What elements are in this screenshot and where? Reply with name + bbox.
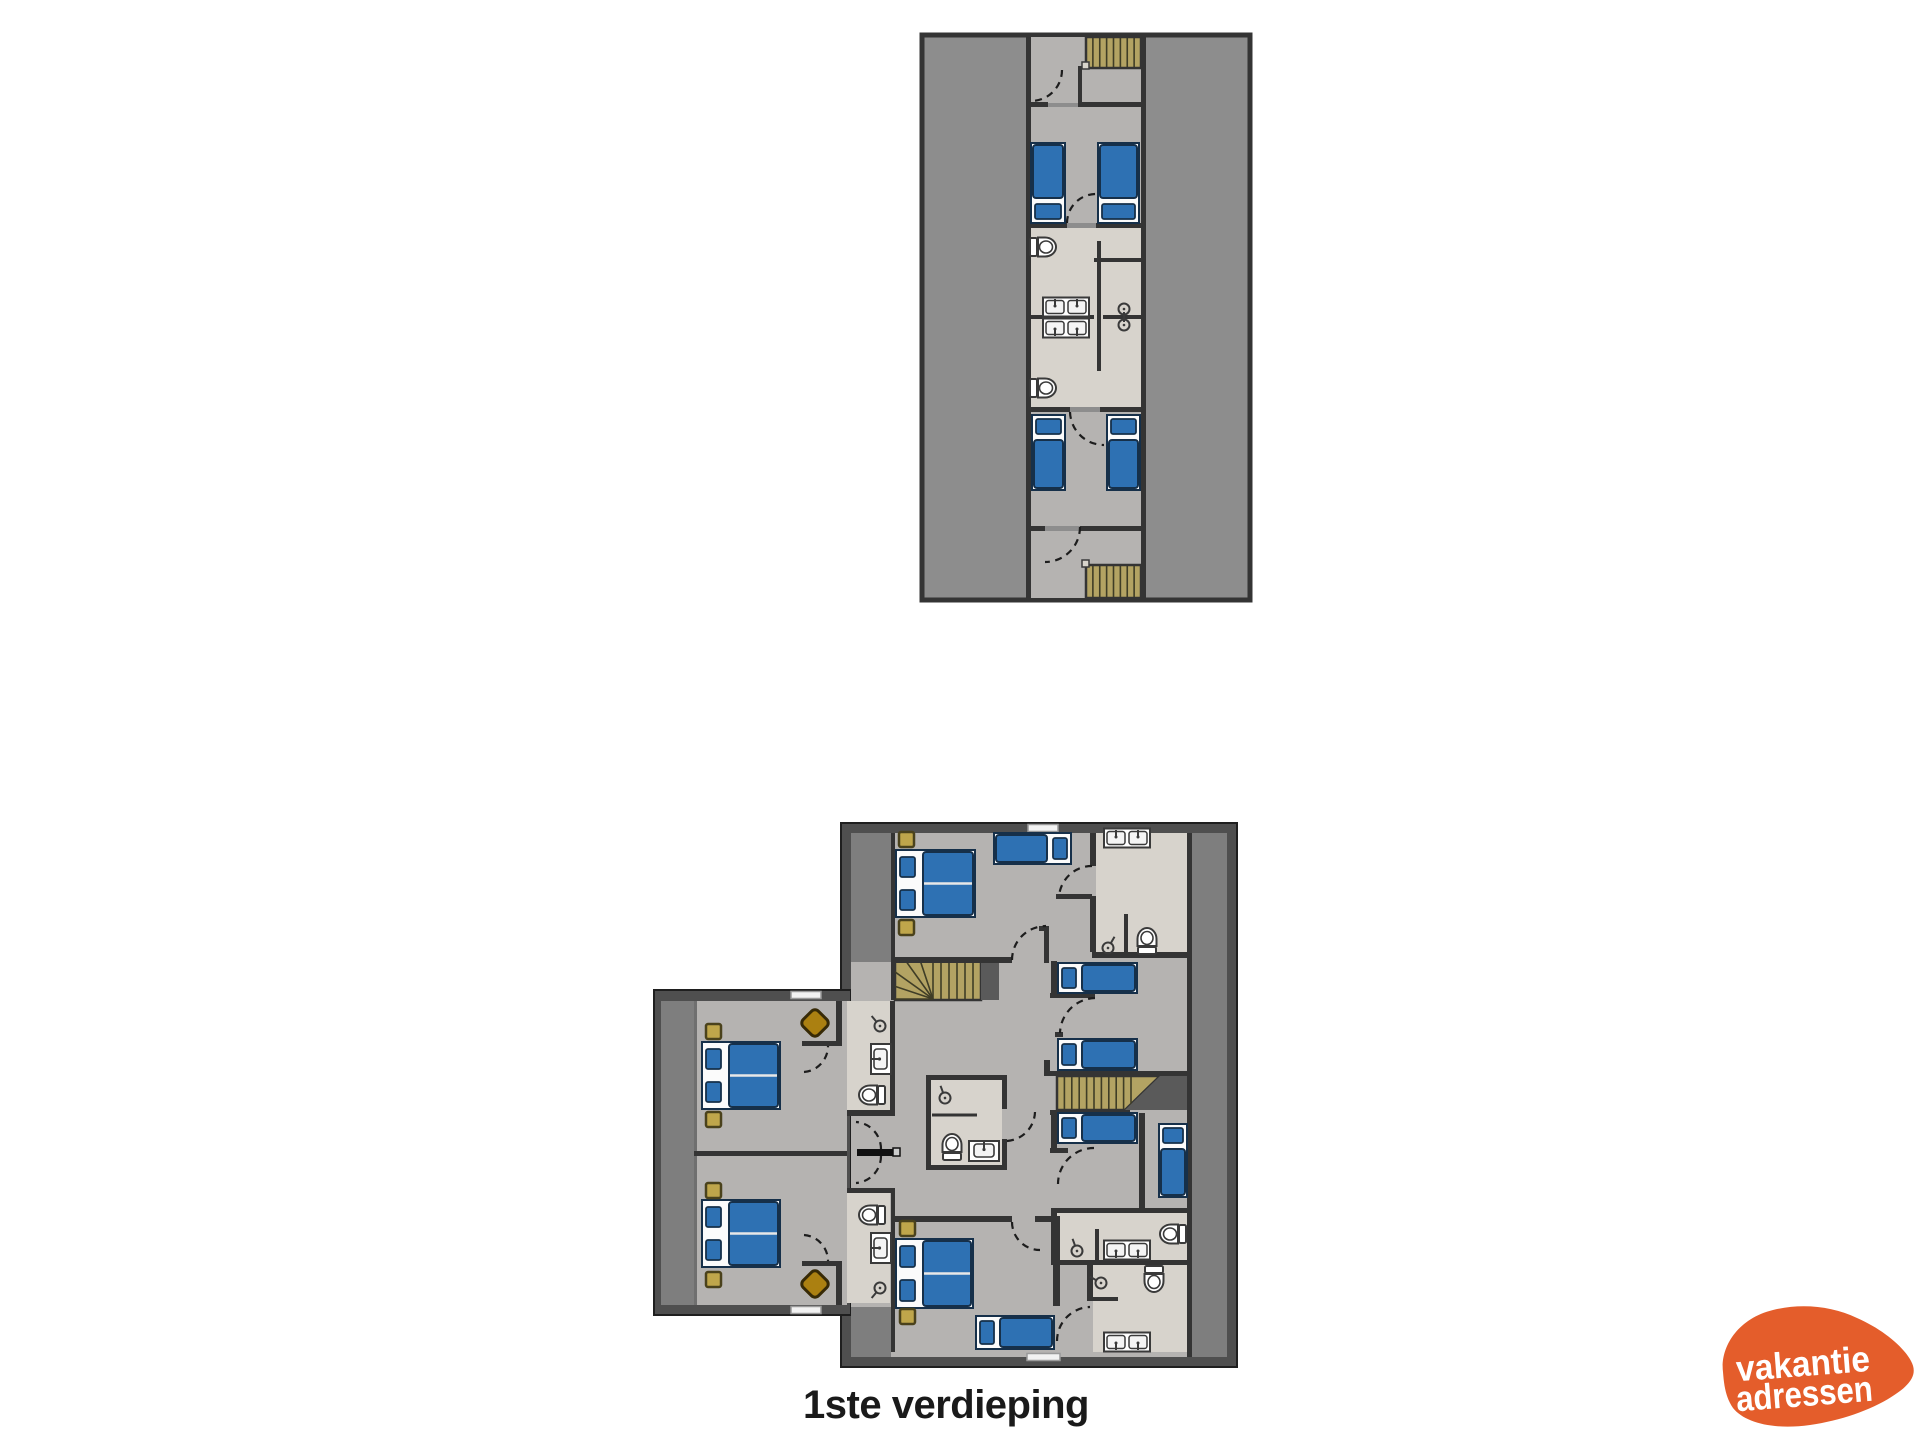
svg-text:1ste verdieping: 1ste verdieping (803, 1383, 1089, 1427)
